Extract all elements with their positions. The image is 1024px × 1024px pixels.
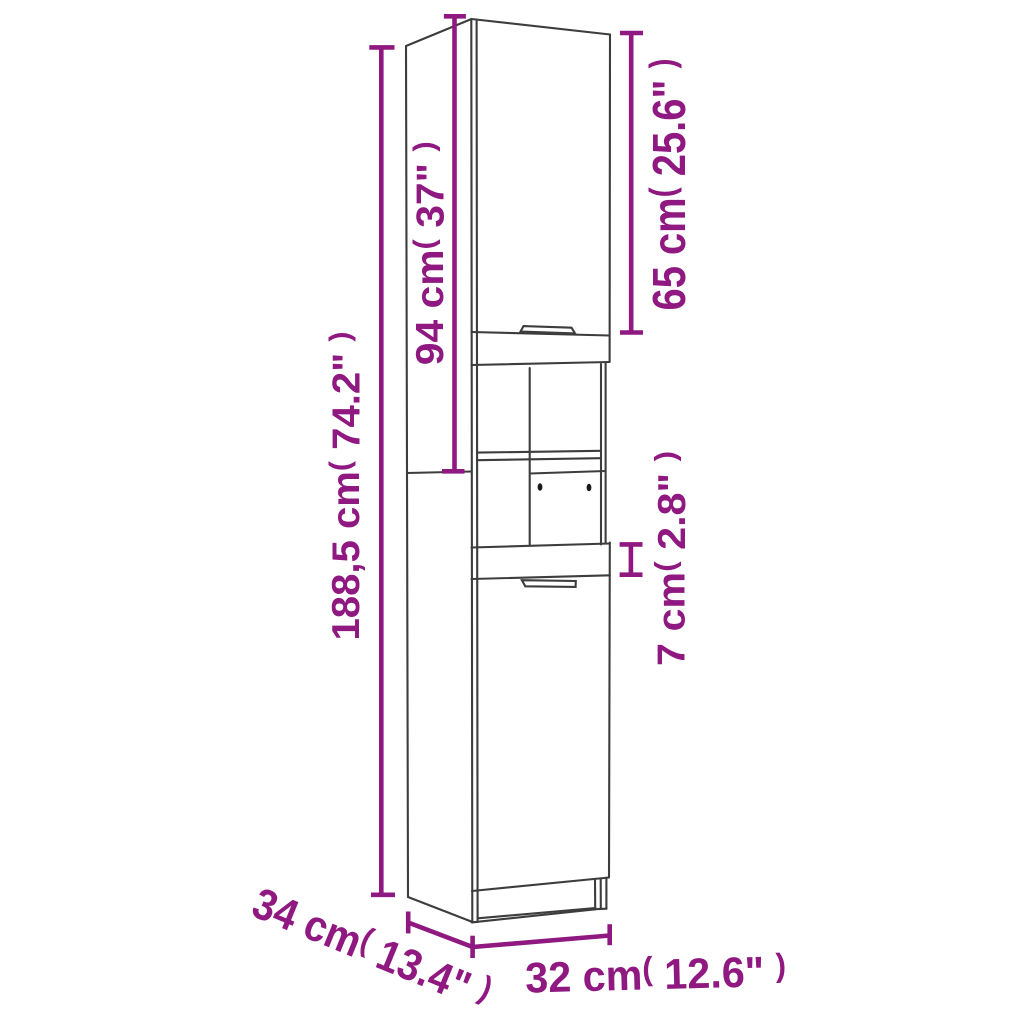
- svg-text:65 cm( 25.6" ): 65 cm( 25.6" ): [642, 59, 695, 311]
- svg-text:32 cm( 12.6" ): 32 cm( 12.6" ): [525, 947, 787, 1003]
- svg-text:7 cm( 2.8" ): 7 cm( 2.8" ): [650, 451, 694, 666]
- svg-text:34 cm( 13.4" ): 34 cm( 13.4" ): [246, 878, 498, 1020]
- svg-text:94 cm( 37" ): 94 cm( 37" ): [408, 141, 452, 365]
- svg-text:188,5 cm( 74.2" ): 188,5 cm( 74.2" ): [325, 332, 369, 641]
